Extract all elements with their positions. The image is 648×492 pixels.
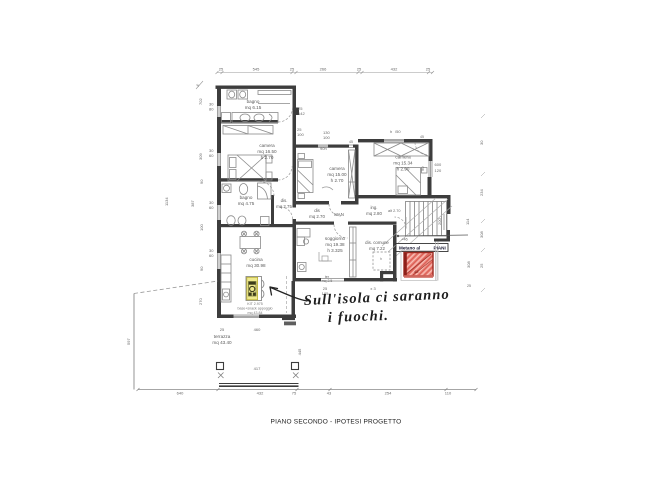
svg-text:25: 25 (290, 67, 295, 72)
svg-text:mq 43.84: mq 43.84 (248, 311, 263, 315)
svg-text:270: 270 (198, 298, 203, 305)
svg-text:mq 4.75: mq 4.75 (238, 201, 255, 206)
svg-text:45: 45 (349, 140, 353, 144)
svg-text:h 2.70: h 2.70 (261, 155, 274, 160)
svg-text:mq 43.40: mq 43.40 (212, 340, 232, 345)
svg-text:80: 80 (209, 107, 214, 112)
svg-text:597: 597 (126, 338, 131, 345)
svg-text:PIANO SECONDO - IPOTESI PROGET: PIANO SECONDO - IPOTESI PROGETTO (271, 419, 402, 426)
svg-text:432: 432 (391, 67, 398, 72)
svg-text:dis: dis (314, 208, 320, 213)
svg-text:mq 2.75: mq 2.75 (276, 204, 292, 209)
svg-text:100: 100 (297, 132, 304, 137)
svg-text:mq 2.5: mq 2.5 (322, 279, 333, 283)
svg-text:25: 25 (357, 67, 362, 72)
svg-text:702: 702 (198, 98, 203, 105)
svg-text:387: 387 (190, 200, 195, 207)
svg-text:110: 110 (445, 391, 452, 396)
svg-text:43: 43 (327, 391, 332, 396)
svg-text:45: 45 (414, 269, 419, 274)
svg-text:254: 254 (385, 391, 392, 396)
svg-text:545: 545 (253, 67, 260, 72)
svg-text:640: 640 (177, 391, 184, 396)
svg-text:bagno: bagno (247, 99, 260, 104)
svg-text:90: 90 (420, 166, 425, 171)
svg-text:25: 25 (467, 284, 471, 288)
svg-text:25: 25 (426, 67, 431, 72)
svg-text:cucina: cucina (249, 257, 263, 262)
svg-text:/50: /50 (395, 129, 401, 134)
svg-text:dis. comune: dis. comune (365, 240, 389, 245)
svg-text:114: 114 (465, 218, 470, 225)
svg-text:445: 445 (297, 348, 302, 355)
svg-text:mq 6.15: mq 6.15 (245, 105, 262, 110)
svg-text:45: 45 (420, 135, 424, 139)
svg-text:308: 308 (479, 231, 484, 238)
svg-text:h: h (390, 129, 392, 134)
svg-text:bagno: bagno (240, 195, 253, 200)
svg-text:432: 432 (257, 391, 264, 396)
svg-text:h 3.325: h 3.325 (327, 248, 343, 253)
svg-text:camera: camera (395, 155, 411, 160)
svg-text:h 2.90: h 2.90 (397, 167, 410, 172)
svg-text:Metano al: Metano al (399, 246, 420, 251)
svg-text:75: 75 (292, 391, 297, 396)
svg-text:60: 60 (209, 153, 214, 158)
svg-text:200: 200 (437, 218, 442, 225)
svg-text:alt 2.70: alt 2.70 (388, 209, 400, 213)
svg-text:terrazza: terrazza (214, 334, 231, 339)
svg-text:+46: +46 (401, 237, 409, 242)
svg-text:mq 16.50: mq 16.50 (257, 149, 277, 154)
svg-text:30: 30 (479, 140, 484, 145)
svg-text:234: 234 (479, 189, 484, 196)
svg-text:142: 142 (298, 111, 305, 116)
svg-text:mq 15.00: mq 15.00 (327, 172, 347, 177)
svg-text:60: 60 (209, 253, 214, 258)
svg-text:MAN: MAN (334, 212, 344, 217)
svg-text:100: 100 (199, 224, 204, 231)
svg-text:25: 25 (220, 327, 225, 332)
svg-text:mq 2.80: mq 2.80 (366, 211, 382, 216)
svg-text:mq 30.98: mq 30.98 (246, 263, 266, 268)
svg-text:mq 19.38: mq 19.38 (325, 242, 345, 247)
svg-text:308: 308 (466, 261, 471, 268)
svg-text:ing.: ing. (370, 205, 377, 210)
svg-text:mq 15.34: mq 15.34 (393, 161, 413, 166)
svg-text:h: h (380, 257, 382, 261)
svg-text:soggiorno: soggiorno (325, 236, 346, 241)
svg-text:460: 460 (254, 327, 261, 332)
svg-text:camera: camera (259, 143, 275, 148)
svg-text:600: 600 (435, 162, 442, 167)
svg-text:417: 417 (254, 366, 261, 371)
svg-text:60: 60 (209, 205, 214, 210)
svg-text:100: 100 (323, 135, 330, 140)
svg-text:90h: 90h (320, 146, 327, 151)
svg-text:1134: 1134 (164, 197, 169, 206)
svg-text:base+snack appoggio: base+snack appoggio (237, 307, 272, 311)
svg-text:266: 266 (320, 67, 327, 72)
svg-text:25: 25 (479, 263, 484, 268)
svg-text:90: 90 (199, 179, 204, 184)
svg-text:25: 25 (219, 67, 224, 72)
svg-text:120: 120 (435, 168, 442, 173)
svg-text:mq 7.22: mq 7.22 (369, 246, 385, 251)
svg-text:h 2.70: h 2.70 (331, 178, 344, 183)
svg-text:KIT 2.975: KIT 2.975 (247, 302, 263, 306)
svg-text:mq 2.70: mq 2.70 (309, 214, 325, 219)
svg-text:camera: camera (329, 166, 345, 171)
svg-text:309: 309 (198, 153, 203, 160)
svg-text:90: 90 (199, 266, 204, 271)
svg-text:dis.: dis. (281, 198, 288, 203)
